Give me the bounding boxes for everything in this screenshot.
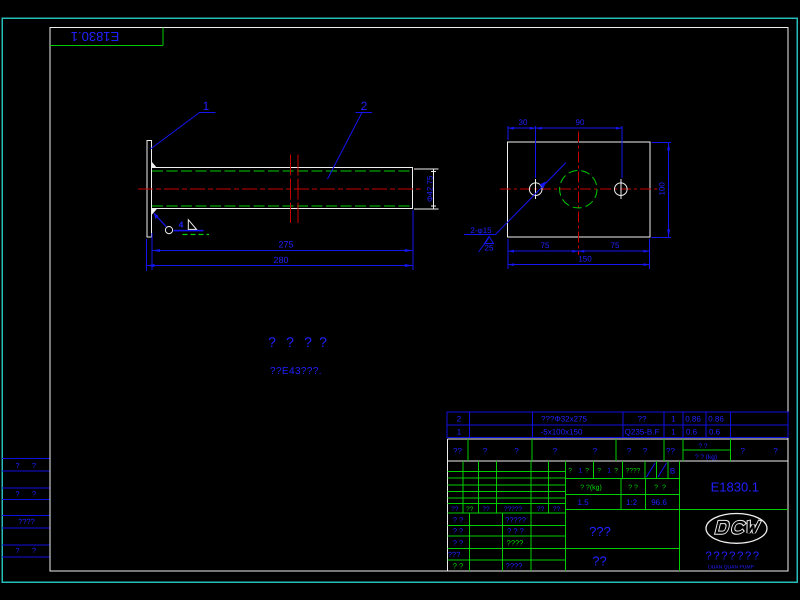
svg-text:B: B [670, 467, 675, 476]
svg-text:90: 90 [576, 118, 585, 127]
svg-text:DUAN QUAN PUMP: DUAN QUAN PUMP [708, 565, 755, 571]
svg-text:?: ? [740, 447, 745, 456]
svg-text:??: ?? [553, 506, 561, 513]
svg-text:?: ? [597, 468, 601, 475]
svg-text:?: ? [319, 334, 327, 350]
svg-text:75: 75 [611, 241, 620, 250]
svg-text:?: ? [32, 461, 36, 470]
svg-text:????: ???? [626, 468, 641, 475]
svg-text:?: ? [773, 447, 778, 456]
svg-text:???????: ??????? [705, 551, 760, 563]
svg-text:? ?: ? ? [628, 485, 638, 492]
svg-text:? ?: ? ? [453, 539, 463, 548]
svg-text:96.6: 96.6 [651, 498, 667, 507]
svg-text:? ?: ? ? [654, 485, 666, 492]
svg-text:???: ??? [589, 524, 611, 539]
svg-text:30: 30 [519, 118, 528, 127]
svg-text:75: 75 [541, 241, 550, 250]
svg-text:-5x100x150: -5x100x150 [541, 428, 583, 437]
svg-text:?: ? [32, 490, 36, 499]
svg-text:?: ? [568, 468, 572, 475]
svg-text:? ? (kg): ? ? (kg) [695, 454, 717, 461]
svg-text:?: ? [614, 468, 618, 475]
svg-text:0.86: 0.86 [685, 415, 701, 424]
svg-text:????: ???? [506, 562, 523, 571]
svg-text:275: 275 [278, 240, 293, 250]
svg-text:??: ?? [537, 506, 545, 513]
svg-text:?: ? [514, 447, 519, 456]
svg-text:0.6: 0.6 [686, 428, 698, 437]
svg-text:?: ? [15, 461, 19, 470]
svg-text:0.6: 0.6 [709, 428, 721, 437]
svg-text:? ?(kg): ? ?(kg) [580, 484, 602, 492]
svg-text:?????: ????? [504, 506, 522, 513]
svg-text:??: ?? [451, 506, 459, 513]
svg-text:0.86: 0.86 [708, 415, 724, 424]
svg-text:????: ???? [18, 517, 35, 526]
svg-text:1: 1 [607, 468, 611, 475]
svg-text:?: ? [268, 334, 276, 350]
svg-text:? ? ?: ? ? ? [507, 527, 524, 536]
svg-text:2: 2 [457, 415, 462, 424]
svg-text:? ?: ? ? [698, 443, 707, 450]
svg-text:1: 1 [671, 428, 676, 437]
svg-text:??E43???.: ??E43???. [270, 366, 322, 377]
svg-text:?: ? [585, 468, 589, 475]
svg-text:280: 280 [273, 255, 288, 265]
svg-text:?: ? [32, 546, 36, 555]
svg-text:??: ?? [482, 506, 490, 513]
svg-text:?: ? [627, 447, 632, 456]
svg-text:??: ?? [466, 506, 474, 513]
svg-text:???Φ32x275: ???Φ32x275 [541, 415, 588, 424]
svg-text:1: 1 [671, 415, 676, 424]
svg-text:150: 150 [578, 255, 592, 264]
svg-text:??: ?? [666, 447, 675, 456]
svg-text:Q235-B.F: Q235-B.F [625, 428, 660, 437]
svg-text:1:2: 1:2 [626, 498, 638, 507]
svg-text:E1830.1: E1830.1 [711, 480, 759, 495]
svg-text:1: 1 [457, 428, 462, 437]
svg-text:?: ? [643, 447, 648, 456]
svg-text:2-φ15: 2-φ15 [470, 226, 492, 235]
svg-text:?: ? [286, 334, 294, 350]
svg-text:4: 4 [179, 220, 184, 230]
svg-text:??: ?? [638, 415, 647, 424]
svg-text:? ?: ? ? [453, 516, 463, 525]
svg-text:E1830.1: E1830.1 [71, 29, 119, 44]
svg-text:????: ???? [507, 539, 524, 548]
svg-text:?: ? [15, 546, 19, 555]
svg-text:??: ?? [453, 447, 462, 456]
svg-text:Φ42.75: Φ42.75 [426, 175, 435, 202]
svg-text:? ?: ? ? [453, 527, 463, 536]
svg-text:100: 100 [658, 182, 667, 196]
svg-text:?: ? [304, 334, 312, 350]
svg-text:1.5: 1.5 [577, 498, 589, 507]
svg-text:?: ? [553, 447, 558, 456]
svg-text:1: 1 [203, 99, 210, 113]
svg-text:?: ? [15, 490, 19, 499]
svg-text:25: 25 [485, 244, 494, 253]
svg-text:1: 1 [579, 468, 583, 475]
svg-text:? ?: ? ? [453, 562, 463, 571]
svg-text:??: ?? [592, 554, 606, 569]
svg-text:???: ??? [448, 550, 461, 559]
svg-text:?: ? [483, 447, 488, 456]
svg-text:?????: ????? [505, 516, 526, 525]
svg-text:?: ? [593, 447, 598, 456]
svg-text:2: 2 [361, 99, 368, 113]
